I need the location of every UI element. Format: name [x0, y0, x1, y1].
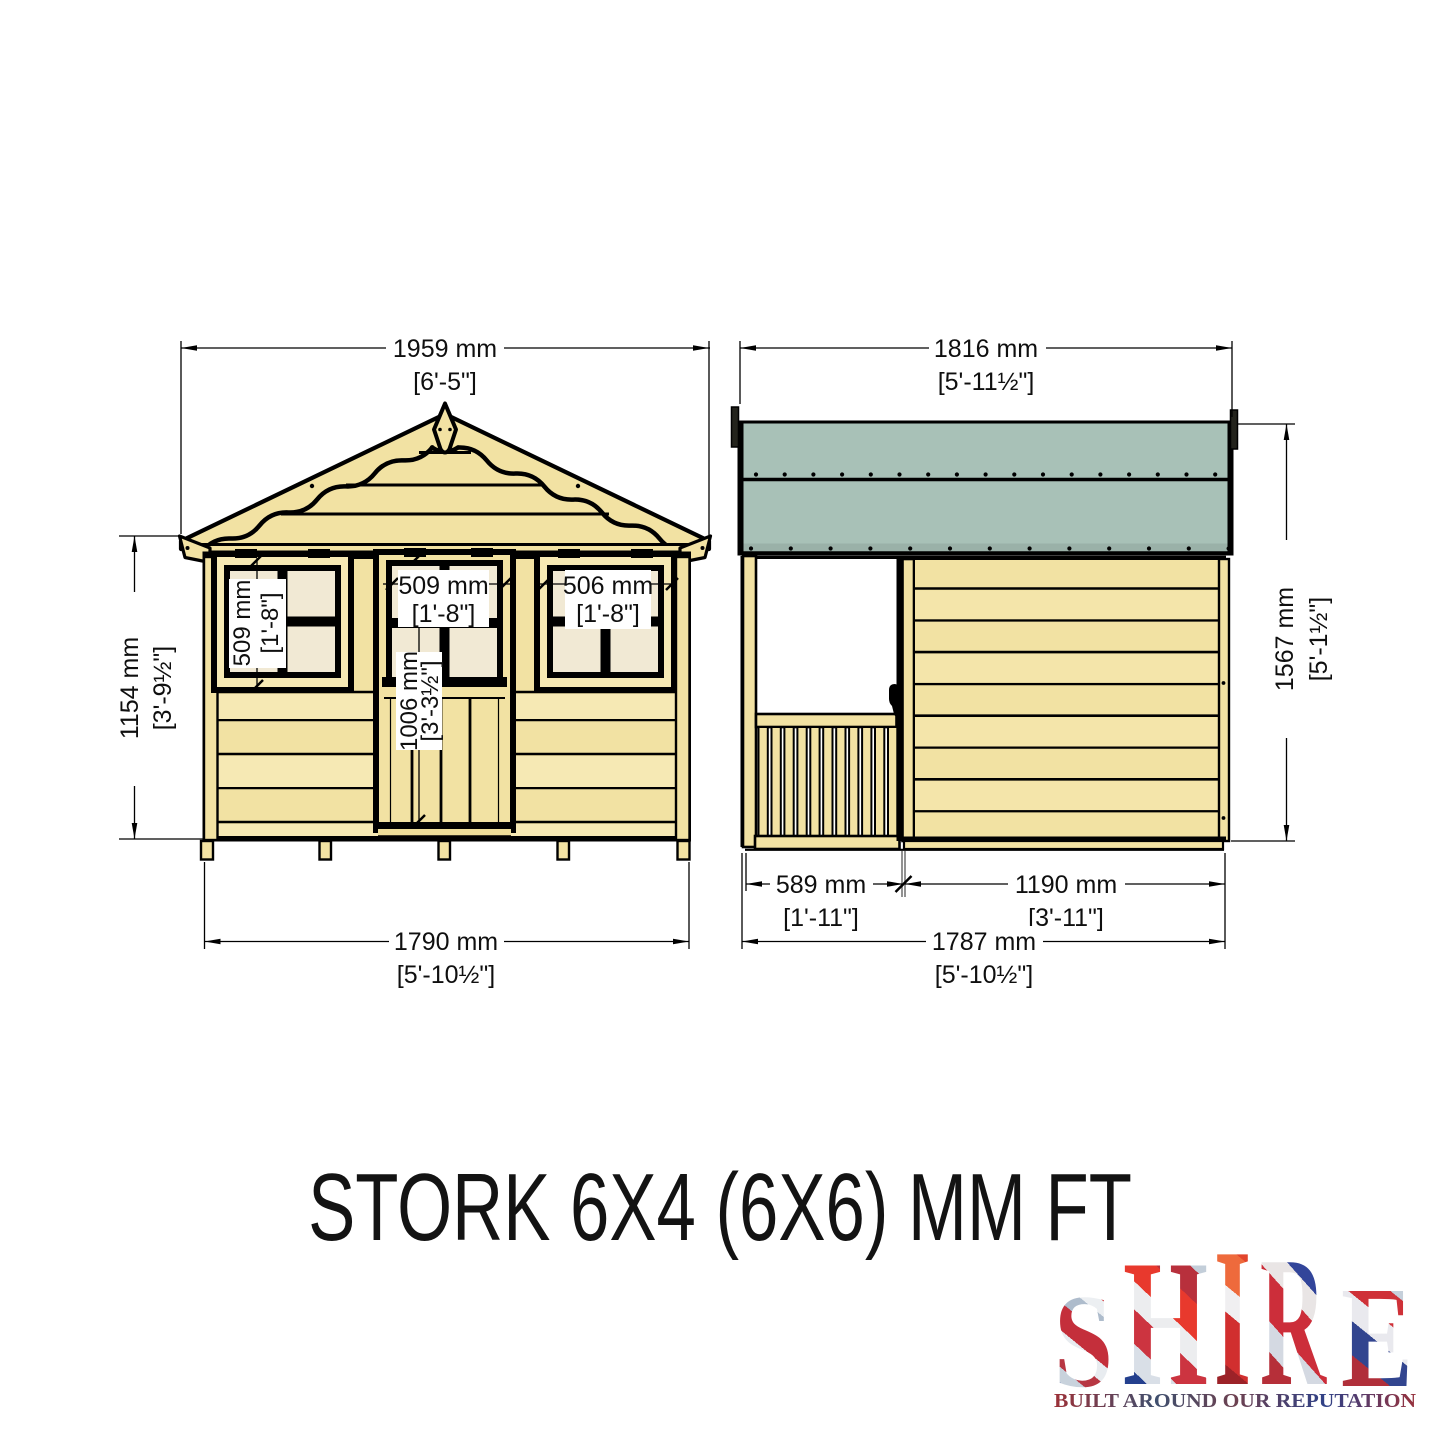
- svg-text:BUILT AROUND OUR REPUTATION: BUILT AROUND OUR REPUTATION: [1054, 1390, 1417, 1412]
- svg-text:[3'-3½"]: [3'-3½"]: [417, 660, 444, 741]
- svg-text:[5'-11½"]: [5'-11½"]: [938, 368, 1035, 396]
- svg-text:[5'-10½"]: [5'-10½"]: [397, 961, 495, 989]
- svg-text:[1'-8"]: [1'-8"]: [412, 600, 476, 628]
- svg-text:[1'-8"]: [1'-8"]: [257, 592, 284, 653]
- svg-text:[1'-11"]: [1'-11"]: [783, 904, 859, 932]
- svg-text:1154 mm: 1154 mm: [116, 637, 144, 739]
- svg-text:509 mm: 509 mm: [229, 580, 256, 667]
- svg-text:[5'-1½"]: [5'-1½"]: [1305, 597, 1333, 682]
- svg-text:STORK 6X4 (6X6) MM FT: STORK 6X4 (6X6) MM FT: [308, 1153, 1132, 1260]
- svg-text:1816 mm: 1816 mm: [934, 335, 1038, 363]
- svg-text:1790 mm: 1790 mm: [394, 928, 498, 956]
- svg-text:[6'-5"]: [6'-5"]: [413, 368, 477, 396]
- svg-text:1567 mm: 1567 mm: [1271, 587, 1299, 691]
- svg-text:[1'-8"]: [1'-8"]: [576, 600, 640, 628]
- svg-text:[5'-10½"]: [5'-10½"]: [935, 961, 1033, 989]
- svg-text:1959 mm: 1959 mm: [393, 335, 497, 363]
- svg-text:506 mm: 506 mm: [563, 572, 653, 600]
- svg-text:589 mm: 589 mm: [776, 871, 866, 899]
- svg-text:1787 mm: 1787 mm: [932, 928, 1036, 956]
- svg-text:509 mm: 509 mm: [398, 572, 488, 600]
- svg-text:1190 mm: 1190 mm: [1015, 871, 1117, 899]
- svg-text:[3'-9½"]: [3'-9½"]: [149, 646, 177, 731]
